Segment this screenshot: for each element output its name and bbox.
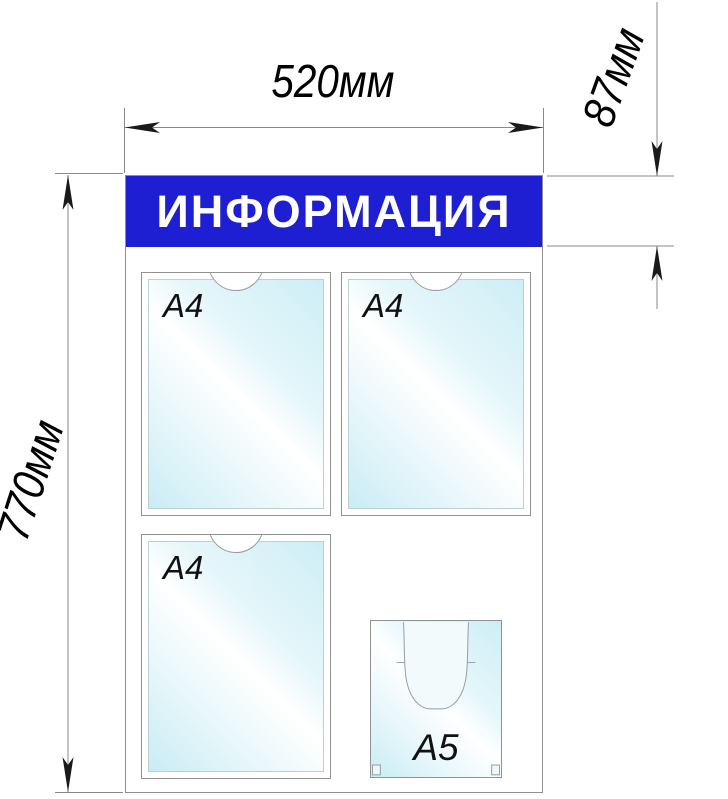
pocket-a5-volume: A5 (370, 620, 502, 778)
arrow-up-icon (652, 246, 663, 281)
pocket-a4-top-right: A4 (341, 272, 531, 516)
pocket-label: A4 (363, 287, 403, 325)
pocket-a4-bottom-left: A4 (141, 534, 331, 779)
info-board: ИНФОРМАЦИЯ A4 A4 A4 A5 (125, 175, 543, 793)
pocket-label: A4 (163, 287, 203, 325)
pocket-a4-top-left: A4 (141, 272, 331, 516)
dimension-width-label: 520мм (233, 55, 433, 107)
arrow-down-icon (652, 141, 663, 176)
arrow-right-icon (508, 122, 543, 133)
dimension-total-height-label: 770мм (0, 377, 86, 583)
pocket-label: A4 (163, 549, 203, 587)
arrow-down-icon (63, 757, 74, 792)
banner-title: ИНФОРМАЦИЯ (156, 186, 511, 238)
dimension-width (125, 108, 544, 173)
dimension-total-height (55, 174, 123, 793)
arrow-up-icon (63, 175, 74, 210)
dimension-header-height-label: 87мм (554, 0, 671, 180)
arrow-left-icon (125, 122, 160, 133)
pocket-label: A5 (413, 727, 458, 769)
header-banner: ИНФОРМАЦИЯ (126, 176, 542, 247)
drawing-canvas: 520мм 87мм 770мм ИНФОРМАЦИЯ A4 A4 A4 (0, 0, 728, 799)
